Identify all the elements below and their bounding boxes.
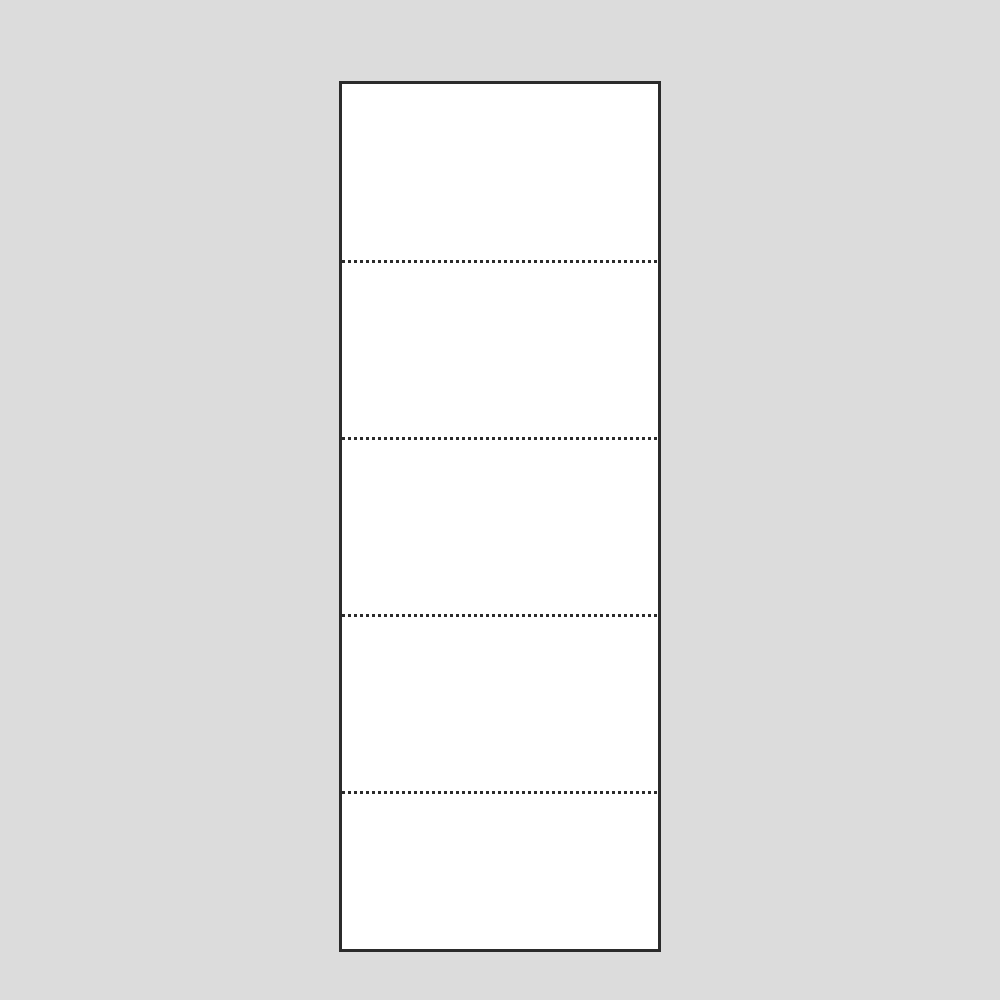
panel-section-5 [342,794,658,949]
panel-section-1 [342,84,658,260]
page-background [0,0,1000,1000]
panel-section-2 [342,263,658,437]
panel-section-4 [342,617,658,791]
paper-strip-panel [339,81,661,952]
panel-section-3 [342,440,658,614]
